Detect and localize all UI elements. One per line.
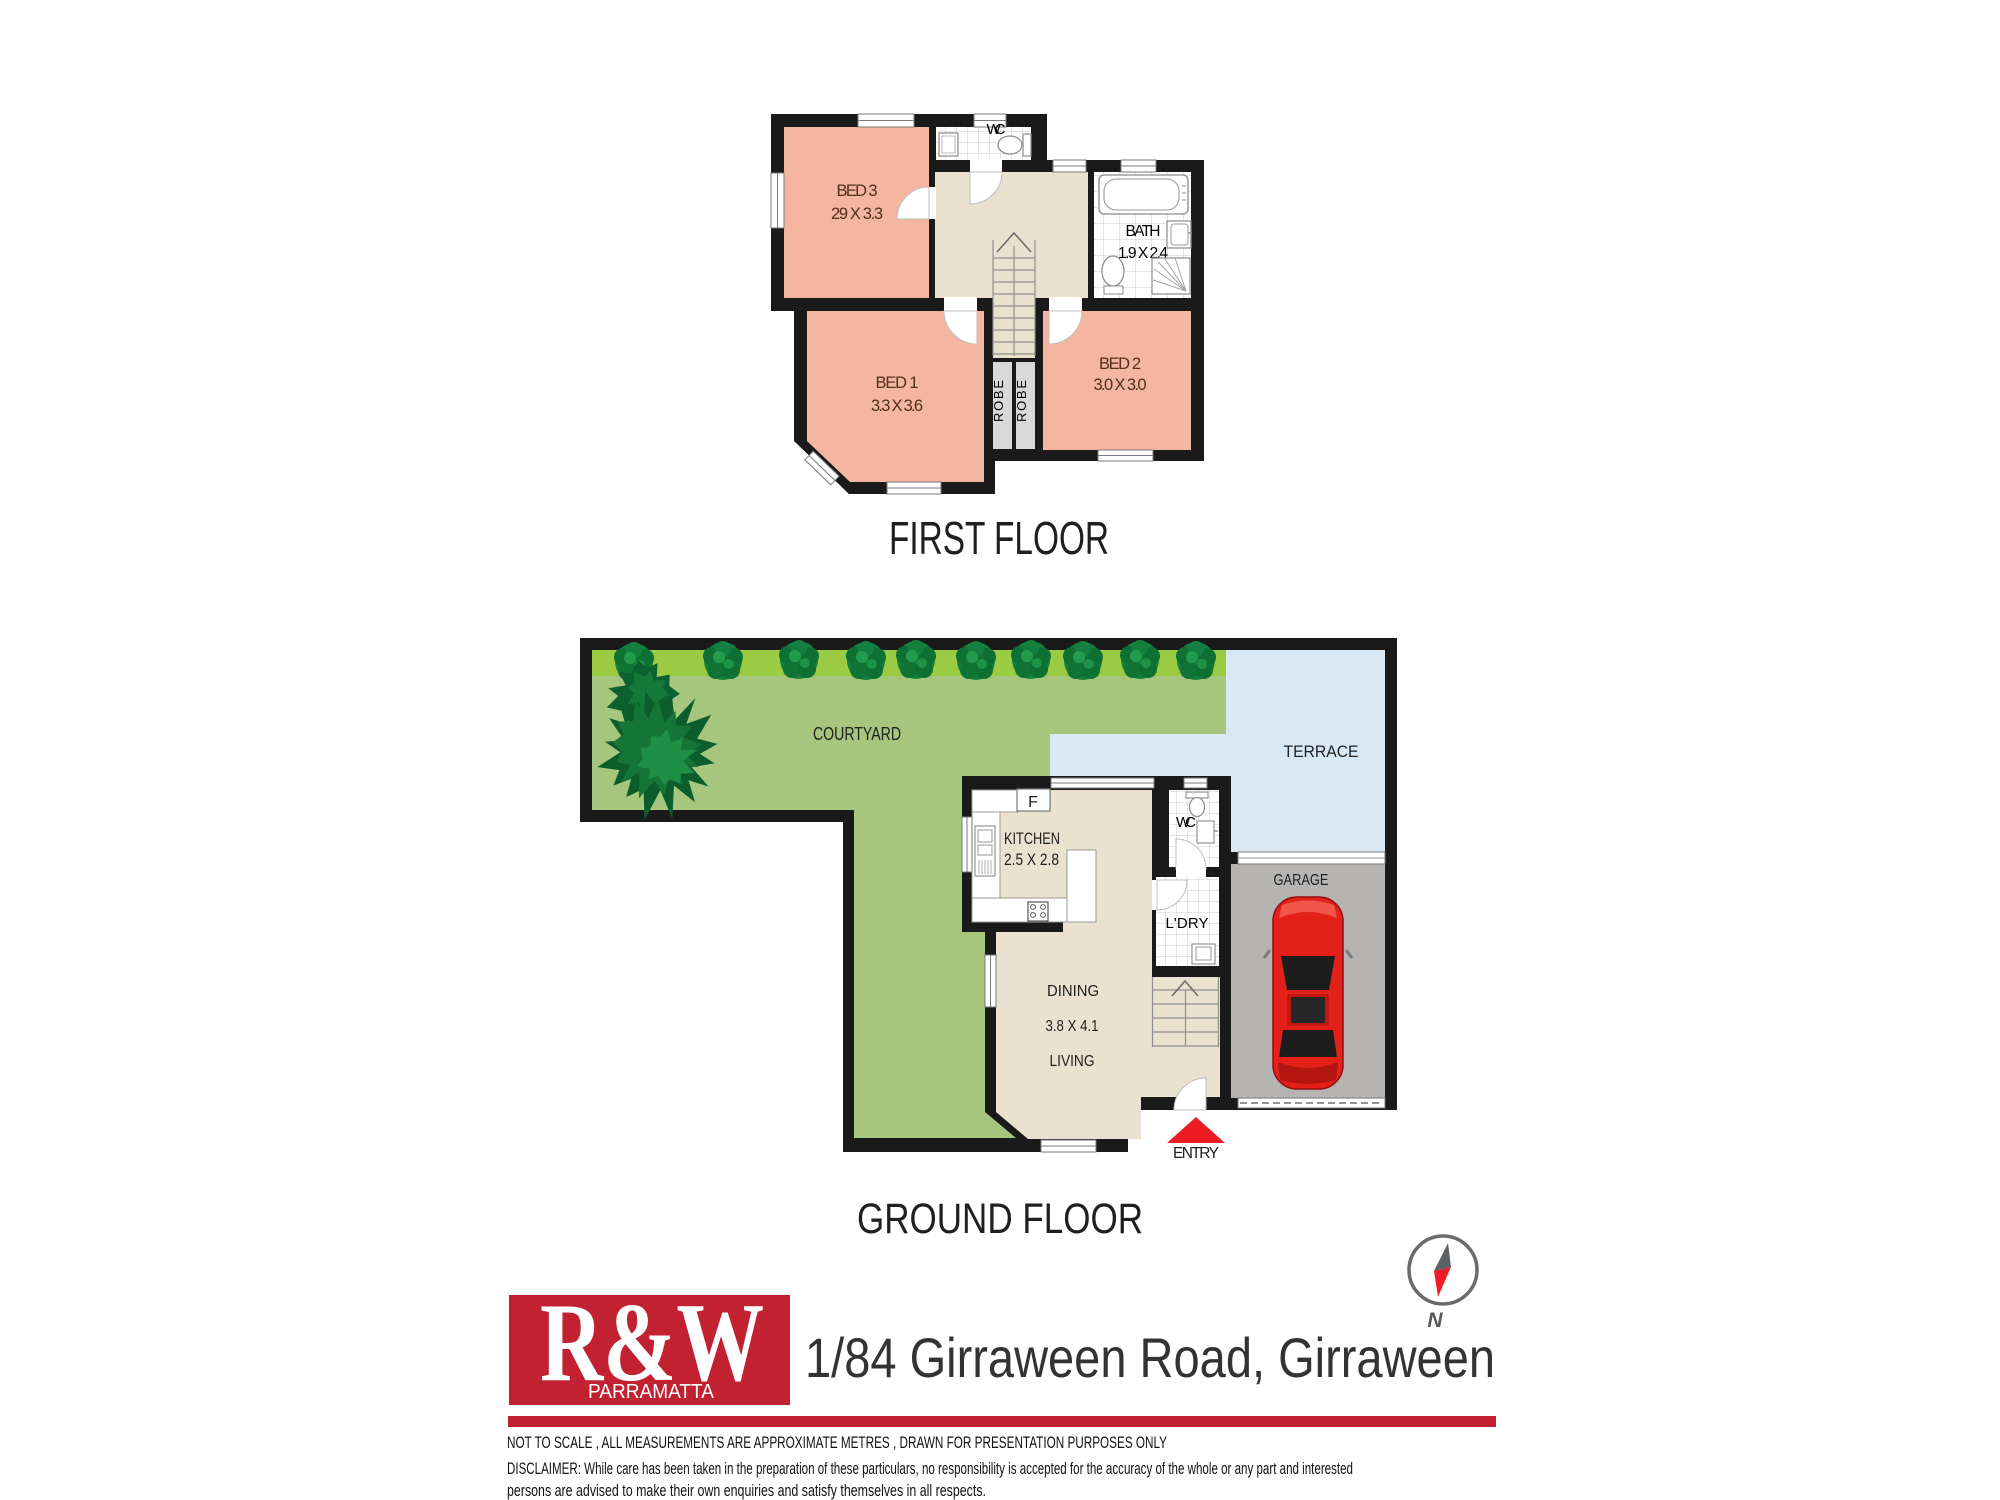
svg-text:KITCHEN: KITCHEN [1004,830,1060,848]
svg-text:BATH: BATH [1126,223,1161,240]
svg-text:ENTRY: ENTRY [1173,1145,1219,1162]
svg-text:3.8 X 4.1: 3.8 X 4.1 [1046,1018,1099,1035]
svg-text:BED 1: BED 1 [876,374,919,392]
svg-text:F: F [1028,794,1038,811]
svg-text:BED 3: BED 3 [837,182,878,200]
svg-text:WC: WC [1176,814,1196,831]
svg-text:COURTYARD: COURTYARD [813,724,901,744]
svg-text:3.3 X 3.6: 3.3 X 3.6 [871,397,923,415]
svg-text:ROBE: ROBE [1014,380,1029,422]
svg-text:1/84 Girraween Road, Girraween: 1/84 Girraween Road, Girraween [805,1326,1495,1389]
svg-text:ROBE: ROBE [991,380,1006,422]
svg-text:WC: WC [987,121,1006,138]
svg-text:3.0 X 3.0: 3.0 X 3.0 [1094,376,1147,394]
svg-text:NOT TO SCALE , ALL MEASUREMENT: NOT TO SCALE , ALL MEASUREMENTS ARE APPR… [507,1434,1167,1452]
svg-text:L'DRY: L'DRY [1166,915,1209,932]
svg-text:GROUND FLOOR: GROUND FLOOR [857,1195,1143,1243]
svg-text:GARAGE: GARAGE [1274,872,1329,889]
svg-text:PARRAMATTA: PARRAMATTA [588,1381,715,1403]
svg-text:29 X 3.3: 29 X 3.3 [831,205,883,223]
svg-text:TERRACE: TERRACE [1284,743,1359,761]
svg-text:2.5 X 2.8: 2.5 X 2.8 [1004,851,1059,869]
svg-text:BED 2: BED 2 [1099,355,1141,373]
svg-text:FIRST FLOOR: FIRST FLOOR [889,512,1109,564]
svg-text:DINING: DINING [1047,983,1099,1000]
svg-text:LIVING: LIVING [1050,1053,1095,1070]
svg-text:persons are advised to make th: persons are advised to make their own en… [507,1481,986,1500]
svg-text:DISCLAIMER: While care has be: DISCLAIMER: While care has been taken in… [507,1459,1353,1478]
